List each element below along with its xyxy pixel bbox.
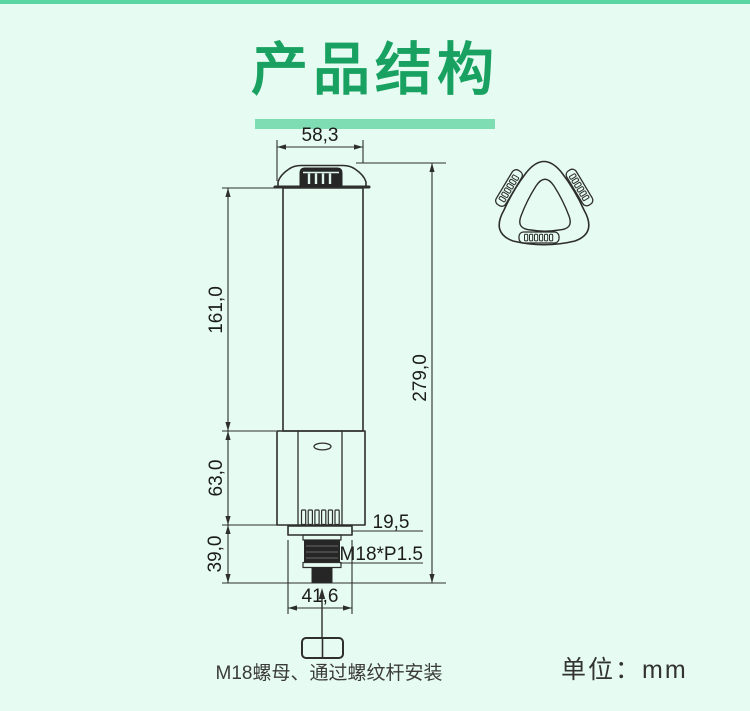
buzzer-grille-icon [300, 168, 342, 187]
top-view-grille-left [494, 168, 524, 208]
dim-label-plate-note: 19,5 [373, 512, 410, 533]
base-slot [314, 443, 331, 450]
front-view: 58,3 161,0 63,0 39,0 [205, 125, 446, 658]
product-structure-drawing: 58,3 161,0 63,0 39,0 [0, 0, 750, 711]
threaded-rod [303, 535, 341, 583]
dim-label-cap-width: 58,3 [302, 125, 339, 146]
dim-label-mount-height: 39,0 [205, 536, 226, 573]
dim-label-plate-width: 41,6 [302, 586, 339, 607]
unit-label: 单位：mm [561, 650, 688, 686]
base [277, 431, 365, 525]
dim-label-total-height: 279,0 [410, 354, 431, 402]
mounting-caption: M18螺母、通过螺纹杆安装 [178, 658, 480, 685]
base-grille-icon [302, 510, 340, 525]
mounting-plate [288, 526, 352, 535]
tower-body [283, 188, 363, 431]
top-view-grille-bottom [519, 232, 559, 243]
dim-label-base-height: 63,0 [206, 460, 227, 497]
page: { "header": { "title": "产品结构" }, "drawin… [0, 0, 750, 711]
dim-plate-note: 19,5 [352, 512, 423, 533]
cap [275, 166, 369, 188]
dim-body-height: 161,0 [206, 188, 276, 431]
top-view [494, 162, 595, 245]
dim-base-height: 63,0 [206, 431, 277, 525]
dim-label-body-height: 161,0 [206, 286, 227, 334]
